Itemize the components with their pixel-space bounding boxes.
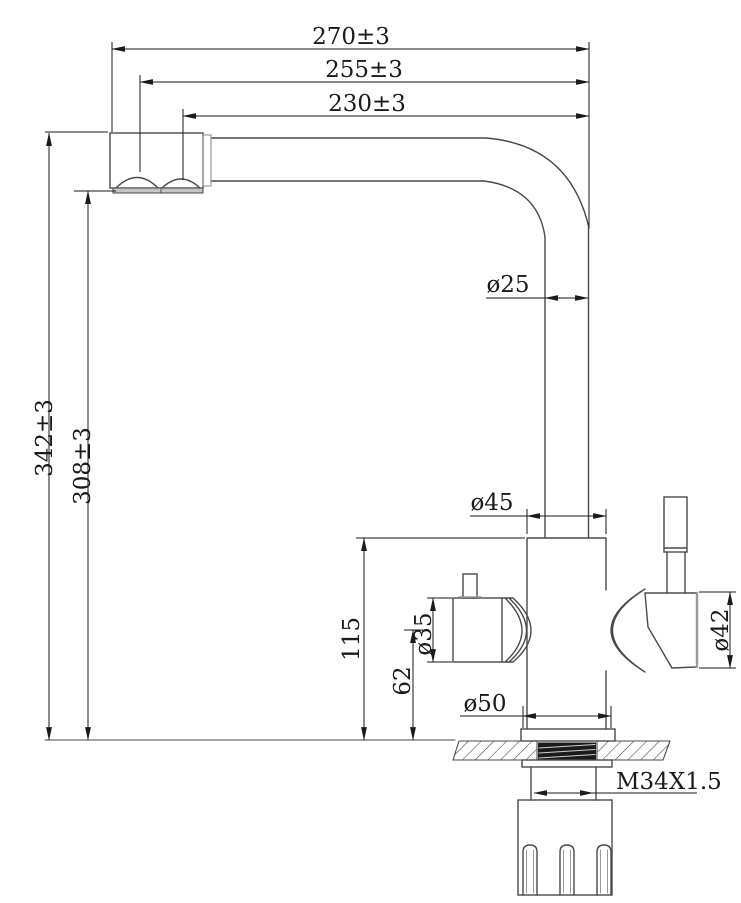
right-waist-contours bbox=[611, 589, 645, 672]
spout-bend bbox=[484, 138, 589, 237]
right-lever-stem bbox=[665, 548, 686, 593]
dim-extensions-left bbox=[45, 132, 116, 191]
dim-label-d45: ø45 bbox=[470, 490, 513, 516]
spout-head bbox=[110, 133, 203, 188]
nut-ribs bbox=[523, 845, 611, 895]
faucet-outline-layer bbox=[45, 133, 697, 895]
threaded-shank bbox=[531, 767, 596, 800]
aerator-rings bbox=[113, 188, 203, 193]
right-valve-body bbox=[645, 593, 697, 668]
base-plate bbox=[521, 729, 615, 741]
valve-body-column bbox=[527, 538, 606, 729]
nut-rib-inner-lines bbox=[527, 850, 608, 893]
technical-drawing-page: 270±3 255±3 230±3 342±3 308±3 ø25 ø45 11… bbox=[0, 0, 741, 903]
dim-extensions-heights bbox=[356, 538, 525, 630]
dim-label-m34-thread: M34X1.5 bbox=[616, 769, 722, 795]
dim-label-overall-width: 270±3 bbox=[312, 24, 390, 50]
dim-label-d35: ø35 bbox=[411, 612, 437, 655]
dimension-labels-layer: 270±3 255±3 230±3 342±3 308±3 ø25 ø45 11… bbox=[32, 24, 734, 795]
left-valve-stem bbox=[463, 574, 477, 598]
faucet-dimension-drawing: 270±3 255±3 230±3 342±3 308±3 ø25 ø45 11… bbox=[0, 0, 741, 903]
dim-label-d25: ø25 bbox=[486, 272, 529, 298]
countertop-slab-left bbox=[453, 741, 537, 760]
under-deck-flange bbox=[522, 760, 612, 767]
dim-label-spout-height: 308±3 bbox=[70, 427, 96, 505]
riser-pipe bbox=[545, 228, 589, 538]
dim-label-width-230: 230±3 bbox=[328, 91, 406, 117]
spout-head-collar bbox=[203, 135, 211, 186]
dim-label-62: 62 bbox=[390, 666, 416, 695]
dim-label-115: 115 bbox=[339, 617, 365, 661]
right-lever-handle bbox=[664, 497, 687, 552]
dim-label-overall-height: 342±3 bbox=[32, 399, 58, 477]
dim-label-width-255: 255±3 bbox=[325, 57, 403, 83]
countertop-slab-right bbox=[597, 741, 670, 760]
left-valve-body bbox=[453, 598, 502, 662]
dim-label-d50: ø50 bbox=[463, 691, 506, 717]
spout-arm bbox=[211, 138, 486, 181]
dim-label-d42: ø42 bbox=[708, 608, 734, 651]
aerator-domes bbox=[116, 178, 200, 189]
